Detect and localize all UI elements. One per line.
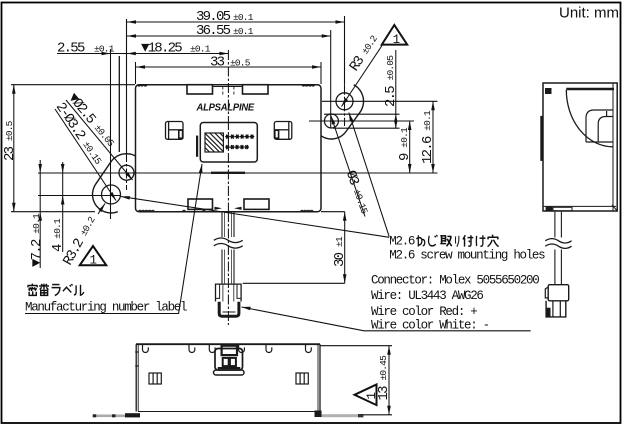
svg-text:36.55: 36.55 bbox=[196, 23, 231, 39]
svg-text:2.55: 2.55 bbox=[57, 41, 85, 57]
svg-text:1: 1 bbox=[90, 254, 97, 268]
svg-text:1: 1 bbox=[393, 33, 400, 47]
svg-text:Wire color Red: +: Wire color Red: + bbox=[371, 305, 477, 319]
svg-text:M2.6 screw mounting holes: M2.6 screw mounting holes bbox=[389, 249, 545, 263]
svg-text:ALPSALPINE: ALPSALPINE bbox=[196, 102, 255, 114]
svg-text:±0.1: ±0.1 bbox=[94, 44, 115, 55]
svg-text:Wire: UL3443 AWG26: Wire: UL3443 AWG26 bbox=[371, 289, 483, 303]
svg-text:Wire color White: -: Wire color White: - bbox=[371, 318, 489, 332]
svg-text:M2.6: M2.6 bbox=[389, 235, 415, 249]
svg-text:±0.5: ±0.5 bbox=[230, 58, 251, 69]
svg-text:Connector: Molex 5055650200: Connector: Molex 5055650200 bbox=[371, 273, 539, 287]
svg-text:33: 33 bbox=[210, 55, 225, 71]
svg-text:Manufacturing number label: Manufacturing number label bbox=[25, 301, 187, 315]
svg-text:±0.1: ±0.1 bbox=[190, 44, 211, 55]
svg-text:▼18.25: ▼18.25 bbox=[141, 41, 182, 57]
svg-text:±0.1: ±0.1 bbox=[233, 12, 254, 23]
svg-text:Unit: mm: Unit: mm bbox=[559, 5, 619, 22]
svg-text:±0.1: ±0.1 bbox=[233, 26, 254, 37]
